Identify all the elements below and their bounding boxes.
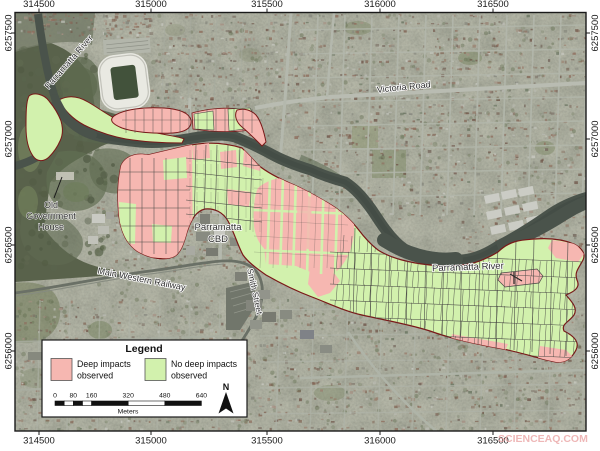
svg-text:Legend: Legend xyxy=(125,343,162,355)
svg-text:0: 0 xyxy=(53,393,57,400)
svg-text:Old: Old xyxy=(44,200,58,210)
svg-text:80: 80 xyxy=(70,393,78,400)
svg-text:House: House xyxy=(38,222,64,232)
svg-text:6257000: 6257000 xyxy=(4,121,15,158)
svg-text:316000: 316000 xyxy=(364,436,396,447)
svg-text:N: N xyxy=(223,382,230,392)
svg-text:Meters: Meters xyxy=(118,409,139,416)
svg-text:6256000: 6256000 xyxy=(590,333,600,370)
svg-text:6257500: 6257500 xyxy=(590,15,600,52)
svg-text:6256500: 6256500 xyxy=(4,227,15,264)
svg-text:315000: 315000 xyxy=(135,436,167,447)
svg-text:316000: 316000 xyxy=(364,0,396,10)
svg-text:316500: 316500 xyxy=(477,0,509,10)
svg-text:observed: observed xyxy=(171,371,207,381)
svg-text:6256500: 6256500 xyxy=(590,227,600,264)
svg-text:Parramatta: Parramatta xyxy=(195,222,243,233)
svg-text:observed: observed xyxy=(77,371,113,381)
svg-text:480: 480 xyxy=(159,393,171,400)
svg-text:Deep impacts: Deep impacts xyxy=(77,359,131,369)
svg-text:Government: Government xyxy=(26,211,76,221)
svg-text:SCIENCEAQ.COM: SCIENCEAQ.COM xyxy=(498,433,588,445)
svg-text:160: 160 xyxy=(86,393,98,400)
svg-text:320: 320 xyxy=(123,393,135,400)
svg-text:6256000: 6256000 xyxy=(4,333,15,370)
svg-text:315000: 315000 xyxy=(135,0,167,10)
svg-text:CBD: CBD xyxy=(208,234,228,245)
svg-text:314500: 314500 xyxy=(23,436,55,447)
svg-text:6257500: 6257500 xyxy=(4,15,15,52)
svg-text:No deep impacts: No deep impacts xyxy=(171,359,238,369)
svg-text:6257000: 6257000 xyxy=(590,121,600,158)
svg-text:314500: 314500 xyxy=(23,0,55,10)
svg-text:315500: 315500 xyxy=(251,436,283,447)
svg-text:640: 640 xyxy=(196,393,208,400)
svg-text:315500: 315500 xyxy=(251,0,283,10)
